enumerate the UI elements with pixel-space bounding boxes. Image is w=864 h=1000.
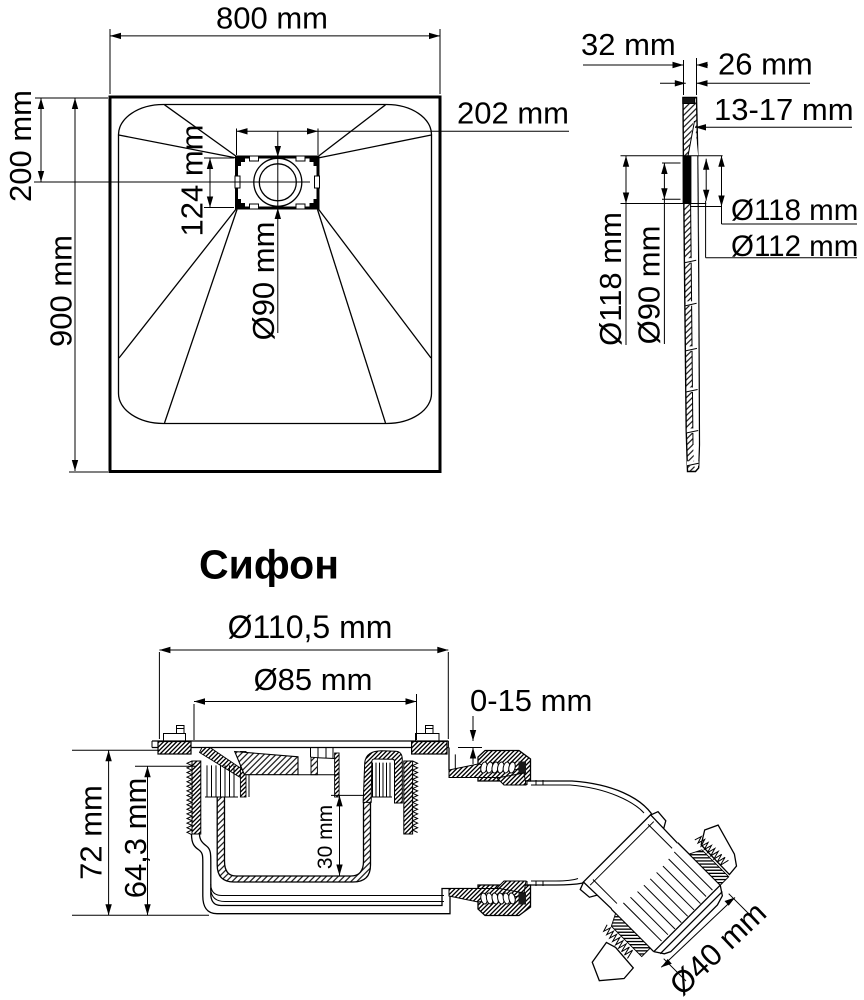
svg-text:202 mm: 202 mm: [457, 96, 569, 131]
svg-text:Сифон: Сифон: [199, 542, 339, 588]
svg-text:Ø110,5 mm: Ø110,5 mm: [228, 609, 393, 645]
svg-text:900 mm: 900 mm: [44, 235, 79, 347]
svg-text:32 mm: 32 mm: [581, 27, 676, 62]
svg-text:200 mm: 200 mm: [3, 90, 38, 202]
svg-text:0-15 mm: 0-15 mm: [470, 683, 592, 718]
svg-text:13-17 mm: 13-17 mm: [714, 92, 854, 127]
svg-text:Ø118 mm: Ø118 mm: [593, 212, 628, 346]
svg-text:Ø90 mm: Ø90 mm: [246, 222, 281, 341]
svg-text:Ø90 mm: Ø90 mm: [632, 226, 667, 345]
svg-text:Ø85 mm: Ø85 mm: [254, 662, 373, 697]
svg-text:30 mm: 30 mm: [314, 805, 337, 869]
svg-text:Ø118 mm: Ø118 mm: [731, 194, 858, 227]
svg-text:64,3 mm: 64,3 mm: [118, 778, 153, 899]
svg-text:72 mm: 72 mm: [74, 785, 109, 880]
svg-text:Ø112 mm: Ø112 mm: [731, 230, 858, 263]
svg-text:124 mm: 124 mm: [175, 125, 210, 237]
svg-text:800 mm: 800 mm: [216, 1, 328, 36]
svg-text:26 mm: 26 mm: [718, 47, 813, 82]
